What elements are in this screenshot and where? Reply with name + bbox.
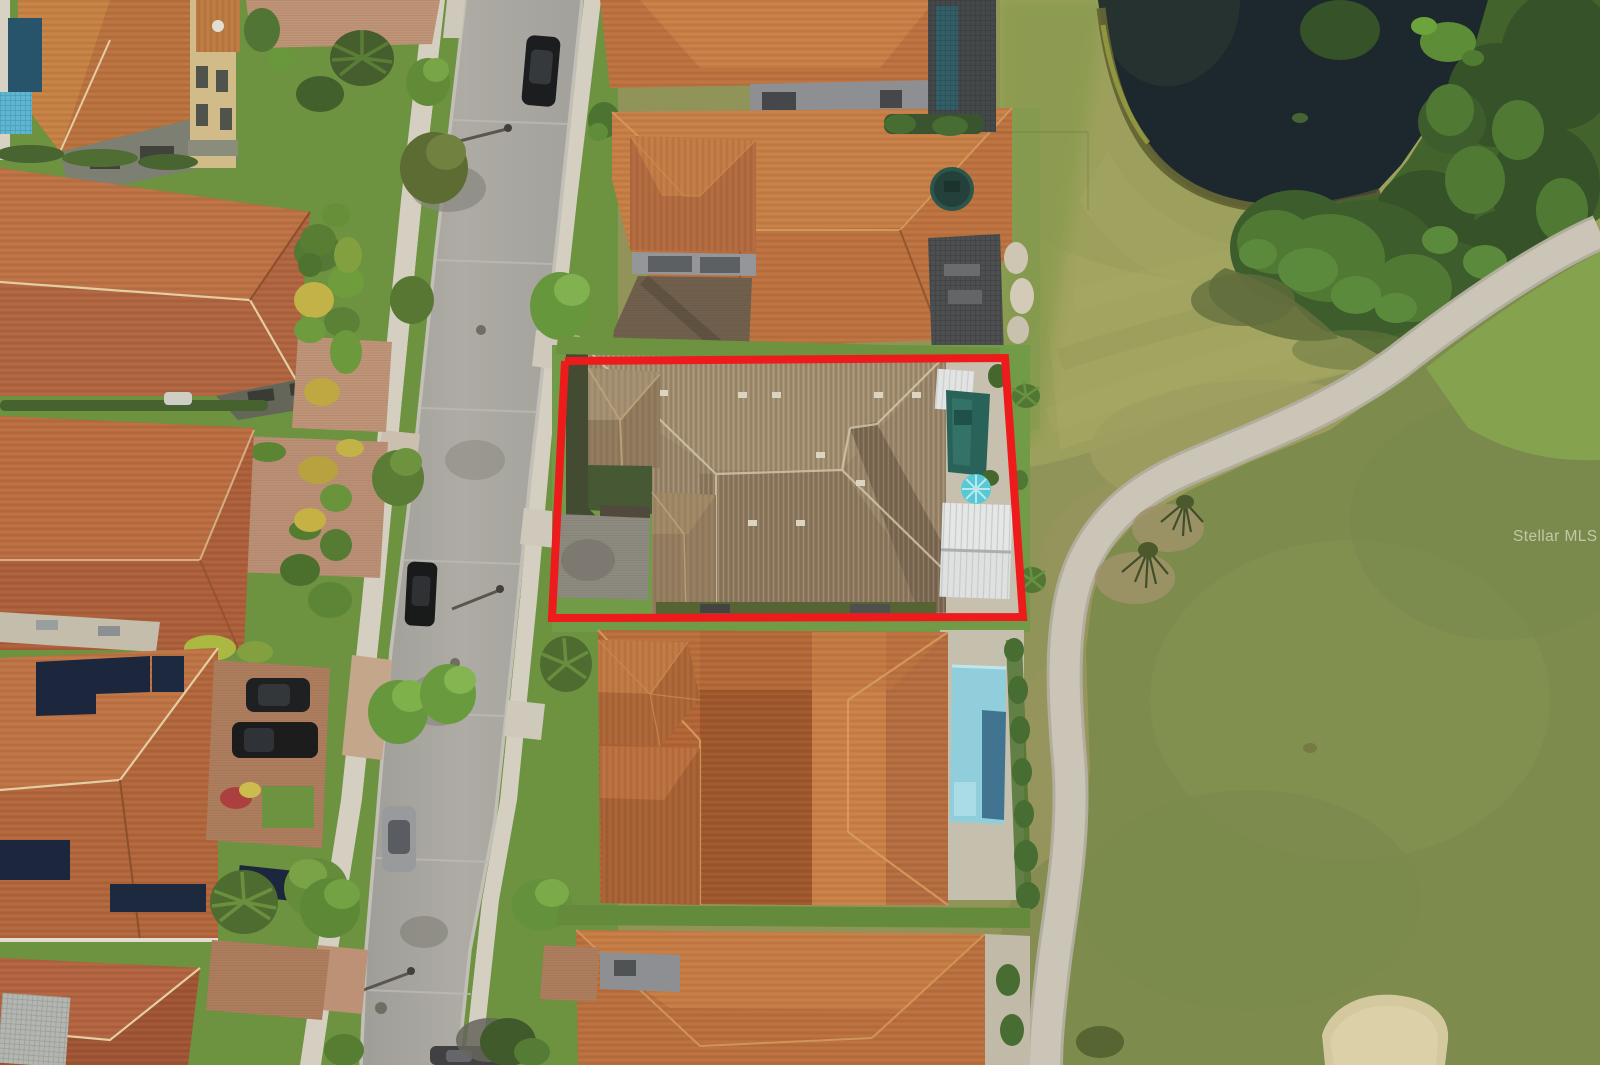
svg-text:Stellar MLS: Stellar MLS <box>1513 528 1598 545</box>
